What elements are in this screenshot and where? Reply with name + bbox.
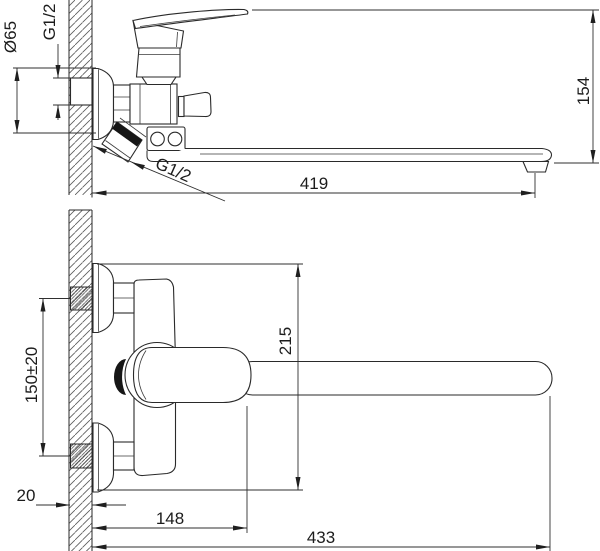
dim-inlet-spacing: 150±20	[22, 299, 70, 457]
dim-label-body-height: 154	[574, 77, 593, 105]
spout-nozzle-side	[523, 162, 549, 173]
escutcheon-upper-plan	[93, 264, 134, 333]
diverter-knob-side	[179, 92, 212, 116]
dim-label-flange-diameter: Ø65	[1, 21, 20, 53]
dim-body-height: 154	[252, 10, 599, 163]
handle-side	[133, 9, 248, 48]
valve-body-side	[130, 84, 177, 124]
cartridge-body-side	[137, 48, 181, 85]
spout-side	[154, 149, 552, 173]
dim-label-spout-reach: 419	[300, 174, 328, 193]
dim-label-overall-reach: 433	[307, 528, 335, 547]
wall-nipple-upper	[71, 287, 93, 310]
wall-nipple-lower	[71, 444, 93, 468]
faucet-dimension-drawing: Ø65 G1/2 154 419	[0, 0, 600, 551]
dim-label-inlet-spacing: 150±20	[22, 347, 41, 404]
wall-section-bottom	[69, 210, 92, 551]
dim-inlet-thread: G1/2	[40, 4, 70, 120]
dim-label-handle-reach: 148	[156, 509, 184, 528]
spout-plan	[236, 362, 552, 396]
dim-label-wall-depth: 20	[17, 486, 36, 505]
handle-plan	[114, 343, 251, 408]
escutcheon-lower-plan	[93, 423, 134, 492]
plan-view: 150±20 215 20 148	[17, 210, 552, 551]
dim-spout-reach: 419	[93, 173, 536, 198]
technical-drawing-page: Ø65 G1/2 154 419	[0, 0, 600, 551]
escutcheon-side	[93, 69, 114, 140]
wall-nipple-top	[71, 78, 93, 105]
side-view: Ø65 G1/2 154 419	[1, 0, 599, 201]
hex-connector-side	[114, 85, 131, 122]
dim-label-overall-width: 215	[276, 327, 295, 355]
dim-label-inlet-thread: G1/2	[40, 4, 59, 41]
